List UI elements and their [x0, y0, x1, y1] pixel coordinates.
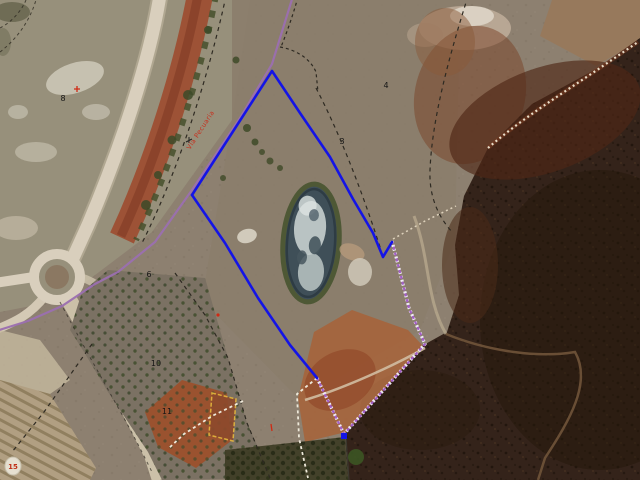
map-viewport[interactable]: 15 84361011 Vía Pecuaria: [0, 0, 640, 480]
landmark-marker[interactable]: 15: [5, 457, 21, 475]
parcel-number: 4: [383, 81, 388, 90]
landmark-label: 15: [8, 463, 18, 471]
highlighted-small-parcel: [209, 393, 236, 441]
parcel-vertex-dot: [341, 433, 347, 439]
parcel-number: 11: [162, 407, 172, 416]
parcel-number: 10: [151, 359, 161, 368]
parcel-number: 8: [60, 94, 65, 103]
parcel-number: 3: [339, 137, 344, 146]
map-canvas[interactable]: 15 84361011 Vía Pecuaria: [0, 0, 640, 480]
parcel-number: 6: [146, 270, 151, 279]
